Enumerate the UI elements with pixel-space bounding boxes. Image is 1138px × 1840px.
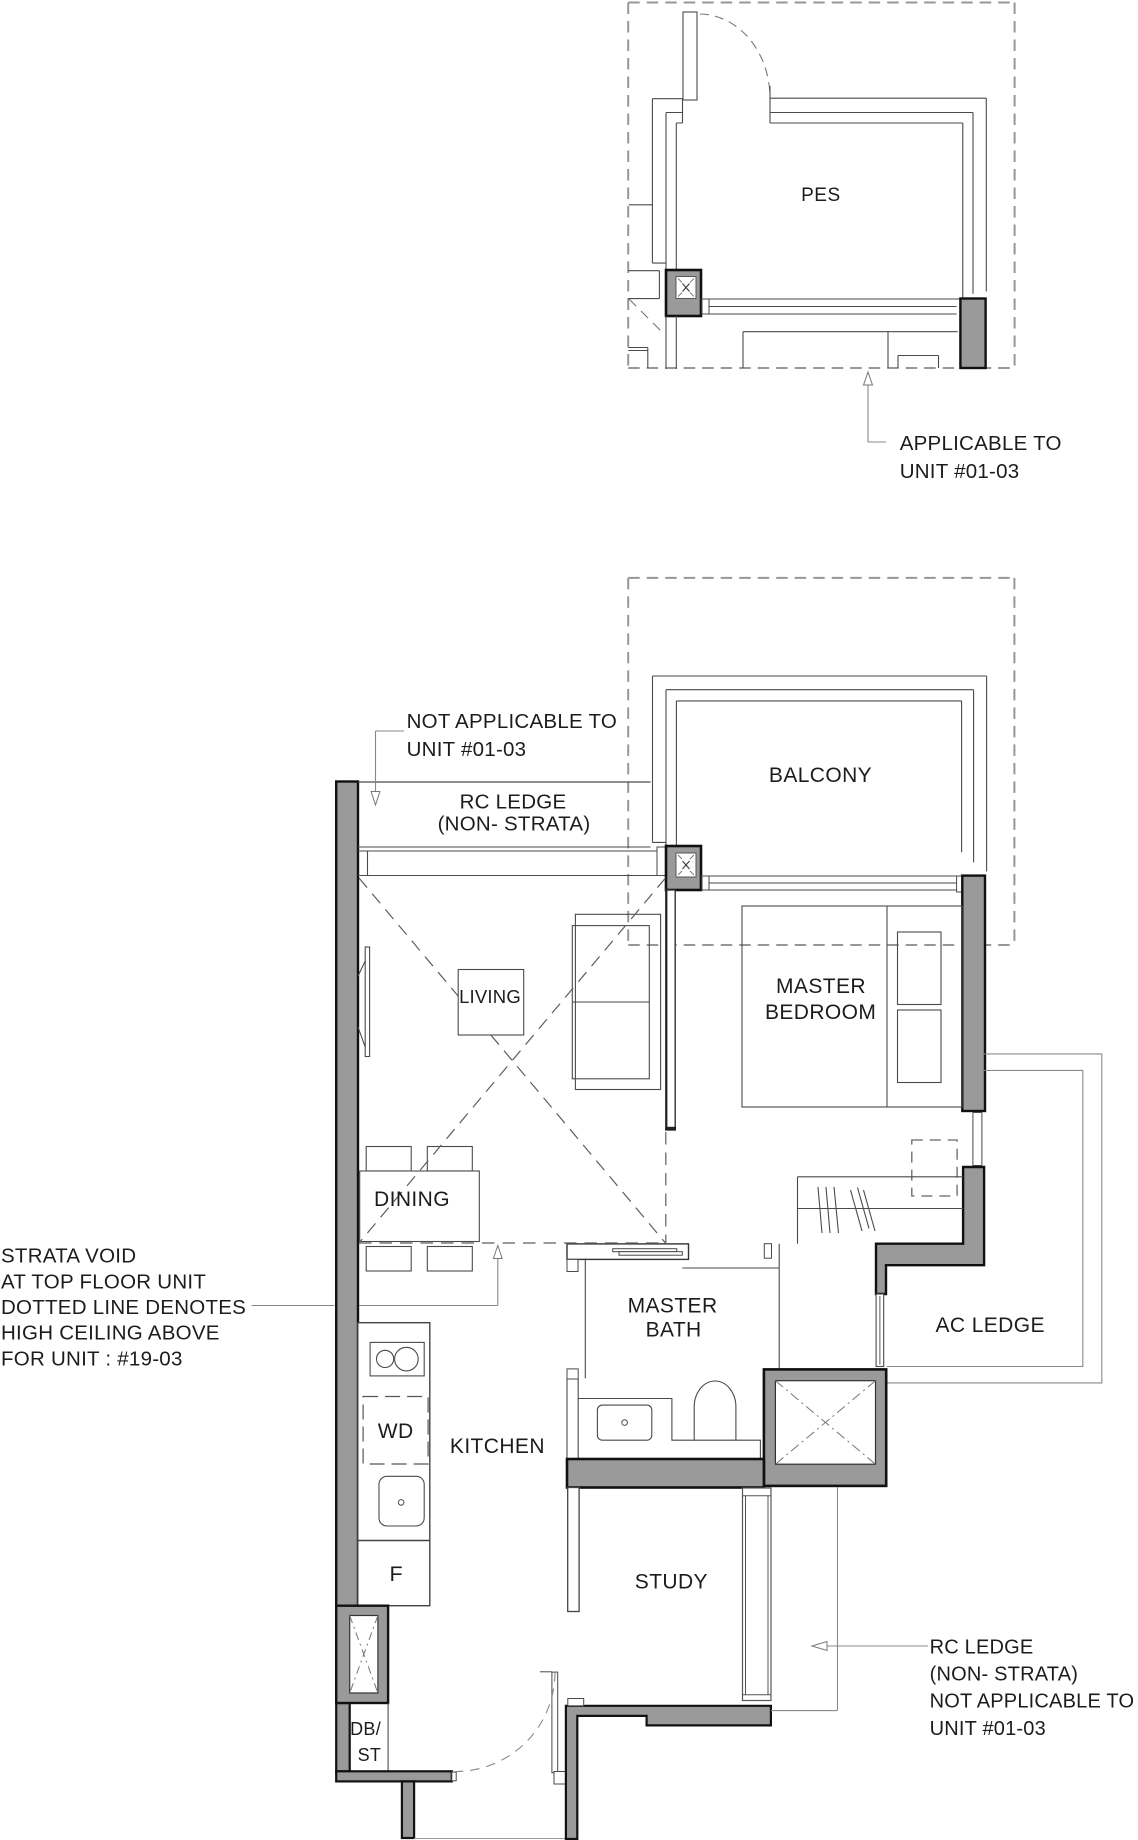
svg-text:MASTER: MASTER	[776, 975, 866, 998]
svg-text:RC LEDGE: RC LEDGE	[460, 791, 567, 814]
svg-text:BALCONY: BALCONY	[769, 764, 872, 787]
svg-text:(NON- STRATA): (NON- STRATA)	[930, 1664, 1079, 1686]
svg-text:FOR UNIT : #19-03: FOR UNIT : #19-03	[1, 1347, 183, 1370]
svg-text:PES: PES	[801, 185, 841, 206]
svg-text:UNIT #01-03: UNIT #01-03	[407, 738, 527, 761]
svg-text:LIVING: LIVING	[459, 986, 521, 1007]
svg-text:HIGH CEILING ABOVE: HIGH CEILING ABOVE	[1, 1322, 220, 1345]
svg-text:APPLICABLE TO: APPLICABLE TO	[900, 432, 1062, 455]
svg-text:BATH: BATH	[646, 1319, 702, 1342]
svg-text:KITCHEN: KITCHEN	[450, 1435, 545, 1458]
svg-text:DINING: DINING	[374, 1188, 450, 1211]
svg-text:RC LEDGE: RC LEDGE	[930, 1637, 1034, 1659]
svg-text:DOTTED LINE DENOTES: DOTTED LINE DENOTES	[1, 1296, 246, 1319]
svg-text:UNIT #01-03: UNIT #01-03	[930, 1718, 1046, 1740]
svg-text:MASTER: MASTER	[628, 1295, 718, 1318]
svg-text:STRATA VOID: STRATA VOID	[1, 1245, 136, 1268]
svg-text:BEDROOM: BEDROOM	[765, 1001, 876, 1024]
svg-text:DB/: DB/	[350, 1719, 381, 1739]
svg-text:WD: WD	[378, 1420, 414, 1443]
svg-text:NOT APPLICABLE TO: NOT APPLICABLE TO	[930, 1691, 1135, 1713]
svg-text:ST: ST	[358, 1745, 382, 1765]
svg-text:AC LEDGE: AC LEDGE	[935, 1314, 1044, 1337]
svg-text:NOT APPLICABLE TO: NOT APPLICABLE TO	[407, 710, 617, 733]
svg-text:STUDY: STUDY	[635, 1571, 708, 1594]
svg-text:UNIT #01-03: UNIT #01-03	[900, 460, 1020, 483]
svg-text:F: F	[390, 1562, 404, 1586]
svg-text:AT TOP FLOOR UNIT: AT TOP FLOOR UNIT	[1, 1270, 206, 1293]
svg-text:(NON- STRATA): (NON- STRATA)	[438, 813, 591, 836]
